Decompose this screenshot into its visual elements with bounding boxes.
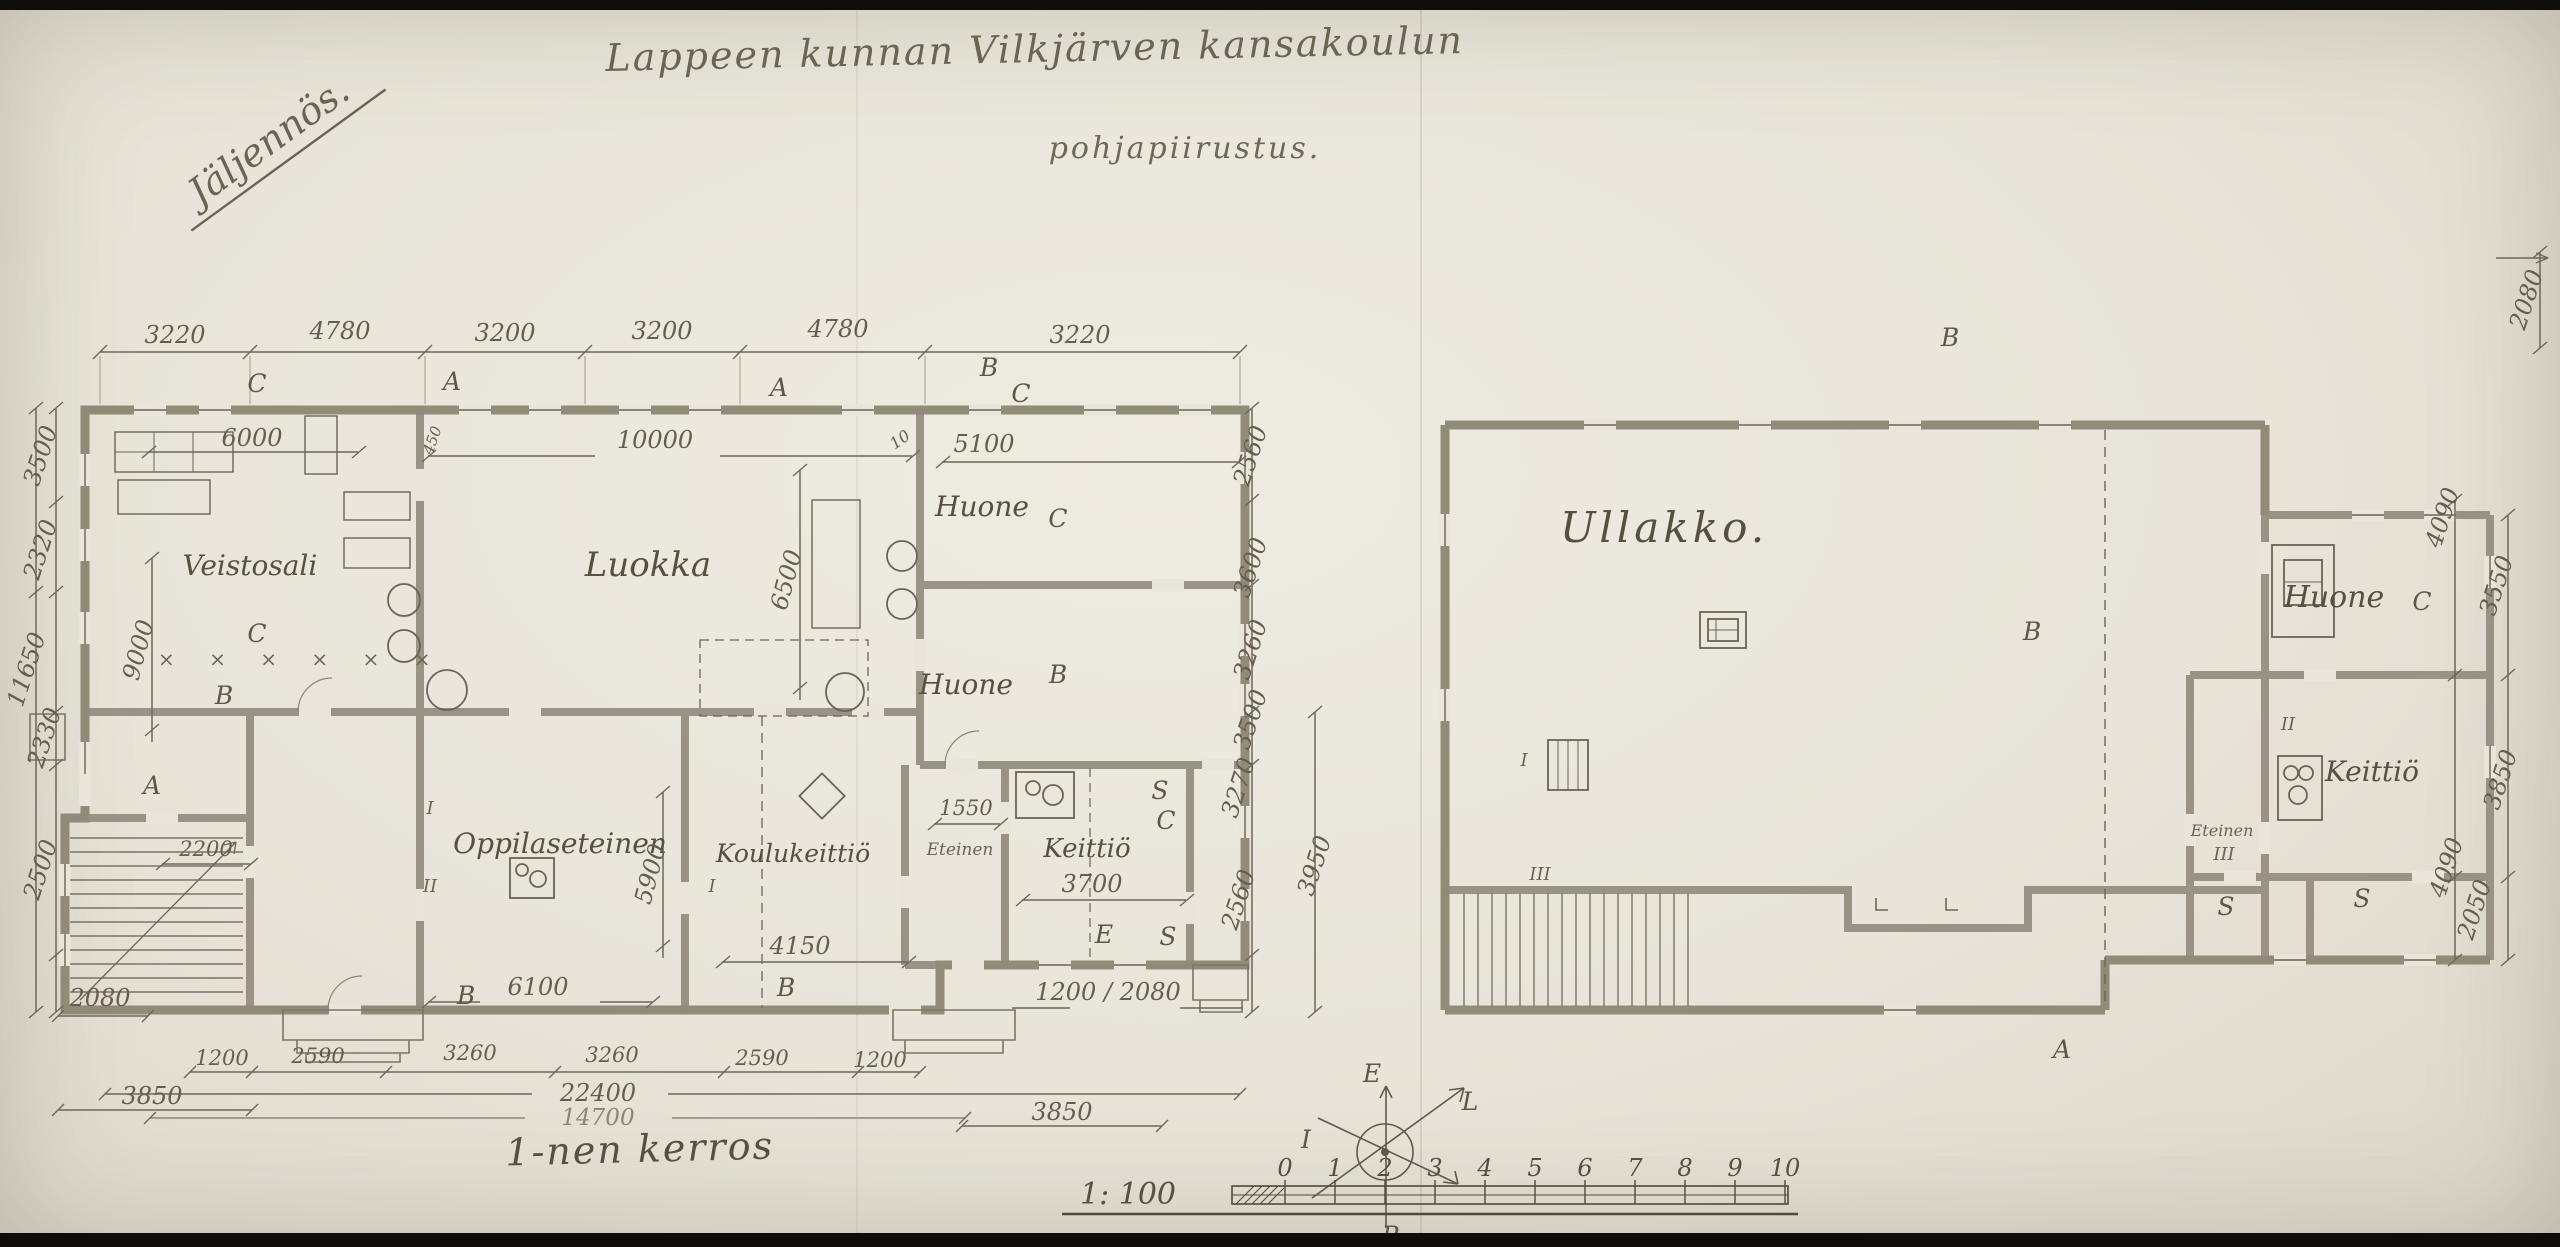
dim-bottom-2: 2590: [290, 1044, 344, 1068]
blueprint-drawing: Lappeen kunnan Vilkjärven kansakoulun po…: [0, 0, 2560, 1247]
dim-total-22400: 22400: [559, 1079, 636, 1107]
dim-top-4: 3200: [631, 317, 692, 345]
x-marks-row: × × × × × ×: [158, 647, 444, 671]
scale-tick-8: 8: [1677, 1154, 1692, 1182]
letter-e-keittio: E: [1094, 920, 1113, 949]
scale-tick-7: 7: [1627, 1154, 1643, 1182]
dim-right-3500: 3500: [1228, 686, 1274, 753]
marker-iii-stair: III: [1528, 864, 1551, 885]
dim-top-1: 3220: [144, 321, 205, 349]
room-keittio-wing: Keittiö: [2324, 755, 2419, 788]
marker-ii-door1: II: [422, 876, 438, 897]
scale-tick-1: 1: [1327, 1154, 1342, 1182]
marker-ii-wing: II: [2280, 714, 2296, 735]
letter-a-hall: A: [141, 771, 161, 800]
letter-s-wing1: S: [2217, 892, 2234, 921]
room-huone-top: Huone: [934, 490, 1029, 523]
letter-c-wing: C: [2412, 587, 2431, 616]
letter-b-top: B: [1940, 323, 1959, 352]
room-oppilaseteinen: Oppilaseteinen: [453, 827, 667, 860]
right-stair-treads: [1464, 893, 1688, 1006]
room-luokka: Luokka: [584, 545, 711, 585]
dim-10: 10: [886, 426, 914, 453]
scale-tick-10: 10: [1770, 1154, 1801, 1182]
scale-label: 1: 100: [1080, 1177, 1176, 1212]
letter-top-c2: C: [1011, 379, 1030, 408]
dim-3700: 3700: [1061, 870, 1122, 898]
scale-bar: 1: 100 0 1 2 3 4 5 6 7 8 9 10: [1062, 1154, 1800, 1214]
compass-letter-top: E: [1362, 1059, 1381, 1088]
scale-tick-0: 0: [1277, 1154, 1292, 1182]
letter-b-mid: B: [2022, 617, 2041, 646]
dim-right-3600: 3600: [1228, 534, 1274, 601]
letter-s-wing2: S: [2353, 884, 2370, 913]
dim-1550: 1550: [939, 796, 992, 820]
title: Lappeen kunnan Vilkjärven kansakoulun po…: [604, 18, 1464, 166]
dimension-guides: [100, 356, 1240, 404]
letter-b-huone: B: [1048, 660, 1067, 689]
room-eteinen-wing: Eteinen: [2190, 821, 2254, 840]
letter-top-a2: A: [768, 373, 788, 402]
dim-porch: 1200 / 2080: [1035, 978, 1181, 1006]
dim-right-2560b: 2560: [1215, 866, 1261, 934]
page-subtitle: pohjapiirustus.: [1049, 131, 1322, 166]
dim-6000: 6000: [221, 424, 282, 452]
letter-c-huone: C: [1048, 504, 1067, 533]
dim-right-2560a: 2560: [1227, 422, 1273, 490]
dim-2200: 2200: [178, 837, 232, 861]
dim-top-2: 4780: [308, 317, 370, 345]
dim-bottom-6: 1200: [853, 1048, 906, 1072]
dim-10000: 10000: [617, 426, 693, 454]
room-eteinen: Eteinen: [926, 840, 994, 860]
letter-c-row: C: [247, 619, 266, 648]
room-veistosali: Veistosali: [183, 549, 318, 582]
copy-stamp: Jäljennös.: [163, 50, 386, 231]
scale-tick-4: 4: [1476, 1154, 1492, 1182]
chimney-and-stoves: [1548, 545, 2334, 820]
dim-left-2080: 2080: [68, 984, 130, 1012]
room-huone-wing: Huone: [2283, 580, 2385, 615]
dim-top-3: 3200: [474, 319, 535, 347]
letter-top-b: B: [979, 353, 998, 382]
dim-2080-far-right: 2080: [2503, 266, 2549, 334]
dim-3850-right: 3850: [1031, 1098, 1092, 1126]
scale-tick-3: 3: [1427, 1154, 1442, 1182]
floor-label: 1-nen kerros: [505, 1123, 775, 1174]
dim-4090-bottom: 4090: [2423, 834, 2469, 902]
dim-top-6: 3220: [1049, 321, 1110, 349]
dim-5100: 5100: [953, 430, 1014, 458]
letter-b-bottom1: B: [456, 981, 475, 1010]
left-plan-labels: Veistosali Luokka Huone Huone Oppilasete…: [1, 315, 1337, 1175]
scale-tick-9: 9: [1727, 1154, 1742, 1182]
dim-6500: 6500: [765, 547, 808, 613]
dim-right-3950: 3950: [1292, 832, 1338, 899]
stamp-text: Jäljennös.: [174, 68, 357, 218]
letter-s-keittio1: S: [1159, 922, 1176, 951]
dim-bottom-3: 3260: [443, 1041, 496, 1065]
scale-tick-5: 5: [1527, 1154, 1542, 1182]
dim-9000: 9000: [117, 617, 160, 683]
page-title: Lappeen kunnan Vilkjärven kansakoulun: [604, 18, 1464, 80]
marker-i-door1: I: [425, 798, 434, 819]
scanned-floor-plan-page: Lappeen kunnan Vilkjärven kansakoulun po…: [0, 0, 2560, 1247]
letter-a-bottom: A: [2051, 1035, 2071, 1064]
dim-right-3260: 3260: [1228, 616, 1274, 683]
compass-letter-right: L: [1461, 1087, 1479, 1116]
dim-bottom-1: 1200: [195, 1046, 248, 1070]
letter-b-bottom2: B: [776, 973, 795, 1002]
dim-3850-left: 3850: [121, 1082, 182, 1110]
dim-bottom-4: 3260: [585, 1043, 638, 1067]
scale-tick-2: 2: [1376, 1154, 1392, 1182]
dim-4150: 4150: [768, 932, 830, 960]
letter-c-keittio: C: [1156, 806, 1175, 835]
letter-s-keittio2: S: [1151, 776, 1168, 805]
marker-i-door2: I: [707, 876, 716, 897]
letter-top-c1: C: [247, 369, 266, 398]
scale-tick-6: 6: [1577, 1154, 1592, 1182]
room-koulukeittio: Koulukeittiö: [715, 839, 870, 868]
compass-rose: E L P I: [1300, 1059, 1478, 1247]
room-huone-mid: Huone: [918, 668, 1013, 701]
dim-left-11650: 11650: [1, 629, 51, 710]
marker-i-stove: I: [1519, 750, 1528, 771]
interior-walls: [65, 410, 1245, 1010]
compass-letter-left: I: [1300, 1125, 1312, 1154]
scale-ticks-lines: [1285, 1180, 1785, 1204]
room-ullakko: Ullakko.: [1560, 503, 1768, 552]
letter-b-veistosali: B: [214, 681, 233, 710]
dim-bottom-5: 2590: [734, 1046, 788, 1070]
letter-top-a1: A: [441, 367, 461, 396]
dashed-platform: [700, 640, 868, 716]
dim-top-5: 4780: [806, 315, 868, 343]
marker-iii-wing: III: [2212, 844, 2235, 865]
dim-3550: 3550: [2474, 552, 2520, 619]
scan-edge-bottom: [0, 1233, 2560, 1247]
room-keittio: Keittiö: [1042, 834, 1130, 864]
dim-6100: 6100: [507, 973, 568, 1001]
notch-marks: [1876, 898, 1958, 910]
scan-edge-top: [0, 0, 2560, 10]
